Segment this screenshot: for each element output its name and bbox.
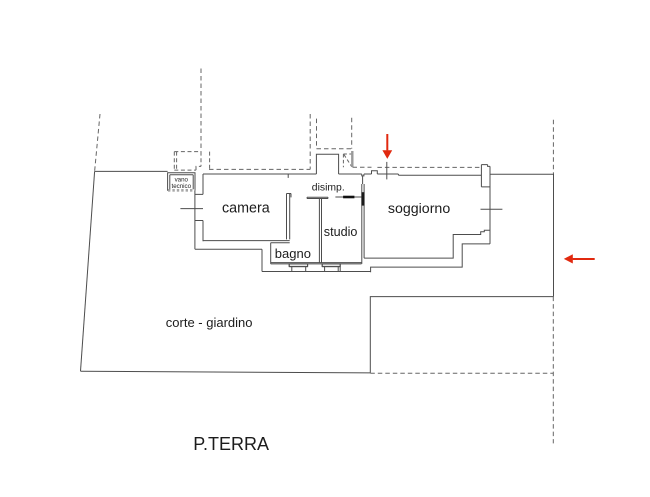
svg-text:tecnico: tecnico bbox=[171, 183, 191, 190]
svg-text:camera: camera bbox=[222, 200, 270, 216]
svg-text:P.TERRA: P.TERRA bbox=[193, 434, 269, 454]
svg-text:bagno: bagno bbox=[275, 246, 311, 261]
svg-text:disimp.: disimp. bbox=[312, 182, 345, 193]
svg-text:corte - giardino: corte - giardino bbox=[166, 315, 253, 330]
svg-text:studio: studio bbox=[324, 225, 358, 239]
svg-text:soggiorno: soggiorno bbox=[388, 201, 450, 217]
